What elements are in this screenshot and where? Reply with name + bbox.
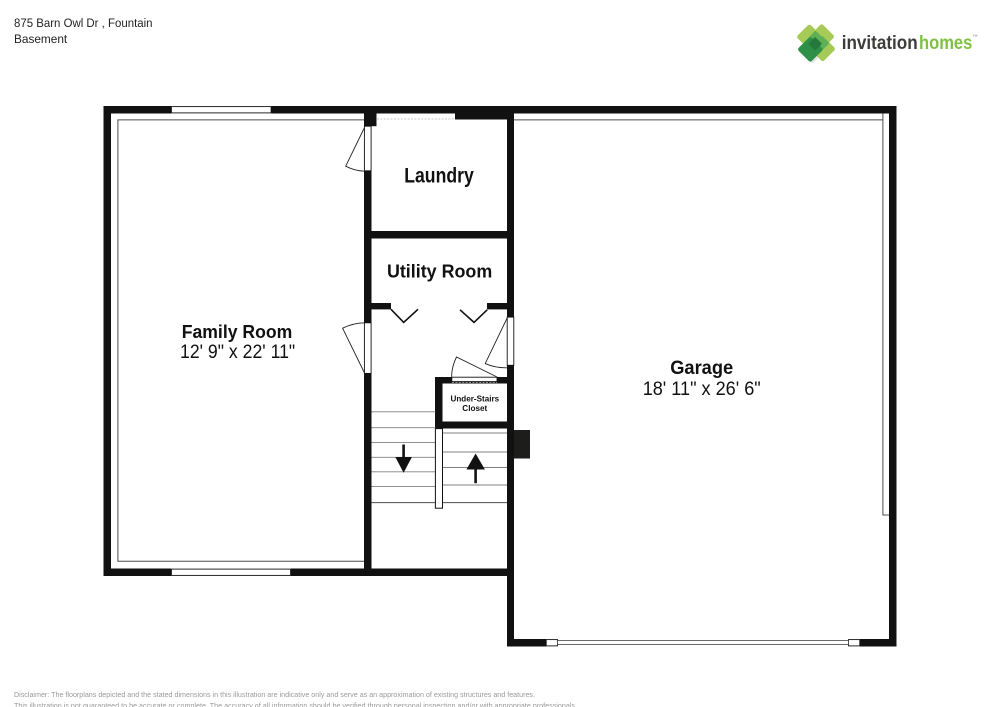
- svg-text:Closet: Closet: [462, 404, 487, 413]
- svg-text:Laundry: Laundry: [404, 165, 474, 188]
- svg-text:875 Barn Owl Dr , Fountain: 875 Barn Owl Dr , Fountain: [14, 16, 153, 30]
- svg-text:Garage: Garage: [670, 357, 733, 379]
- svg-text:Disclaimer: The floorplans dep: Disclaimer: The floorplans depicted and …: [14, 692, 535, 699]
- svg-text:homes: homes: [919, 32, 972, 54]
- svg-text:Under-Stairs: Under-Stairs: [451, 394, 500, 403]
- svg-text:Basement: Basement: [14, 32, 68, 46]
- svg-text:Family Room: Family Room: [182, 321, 293, 342]
- svg-text:18' 11" x 26' 6": 18' 11" x 26' 6": [643, 378, 761, 400]
- svg-text:This illustration is not guara: This illustration is not guaranteed to b…: [14, 703, 577, 707]
- svg-text:Utility Room: Utility Room: [387, 261, 492, 282]
- svg-text:invitation: invitation: [842, 32, 918, 54]
- svg-text:™: ™: [972, 35, 978, 41]
- svg-text:12' 9" x 22' 11": 12' 9" x 22' 11": [180, 342, 295, 363]
